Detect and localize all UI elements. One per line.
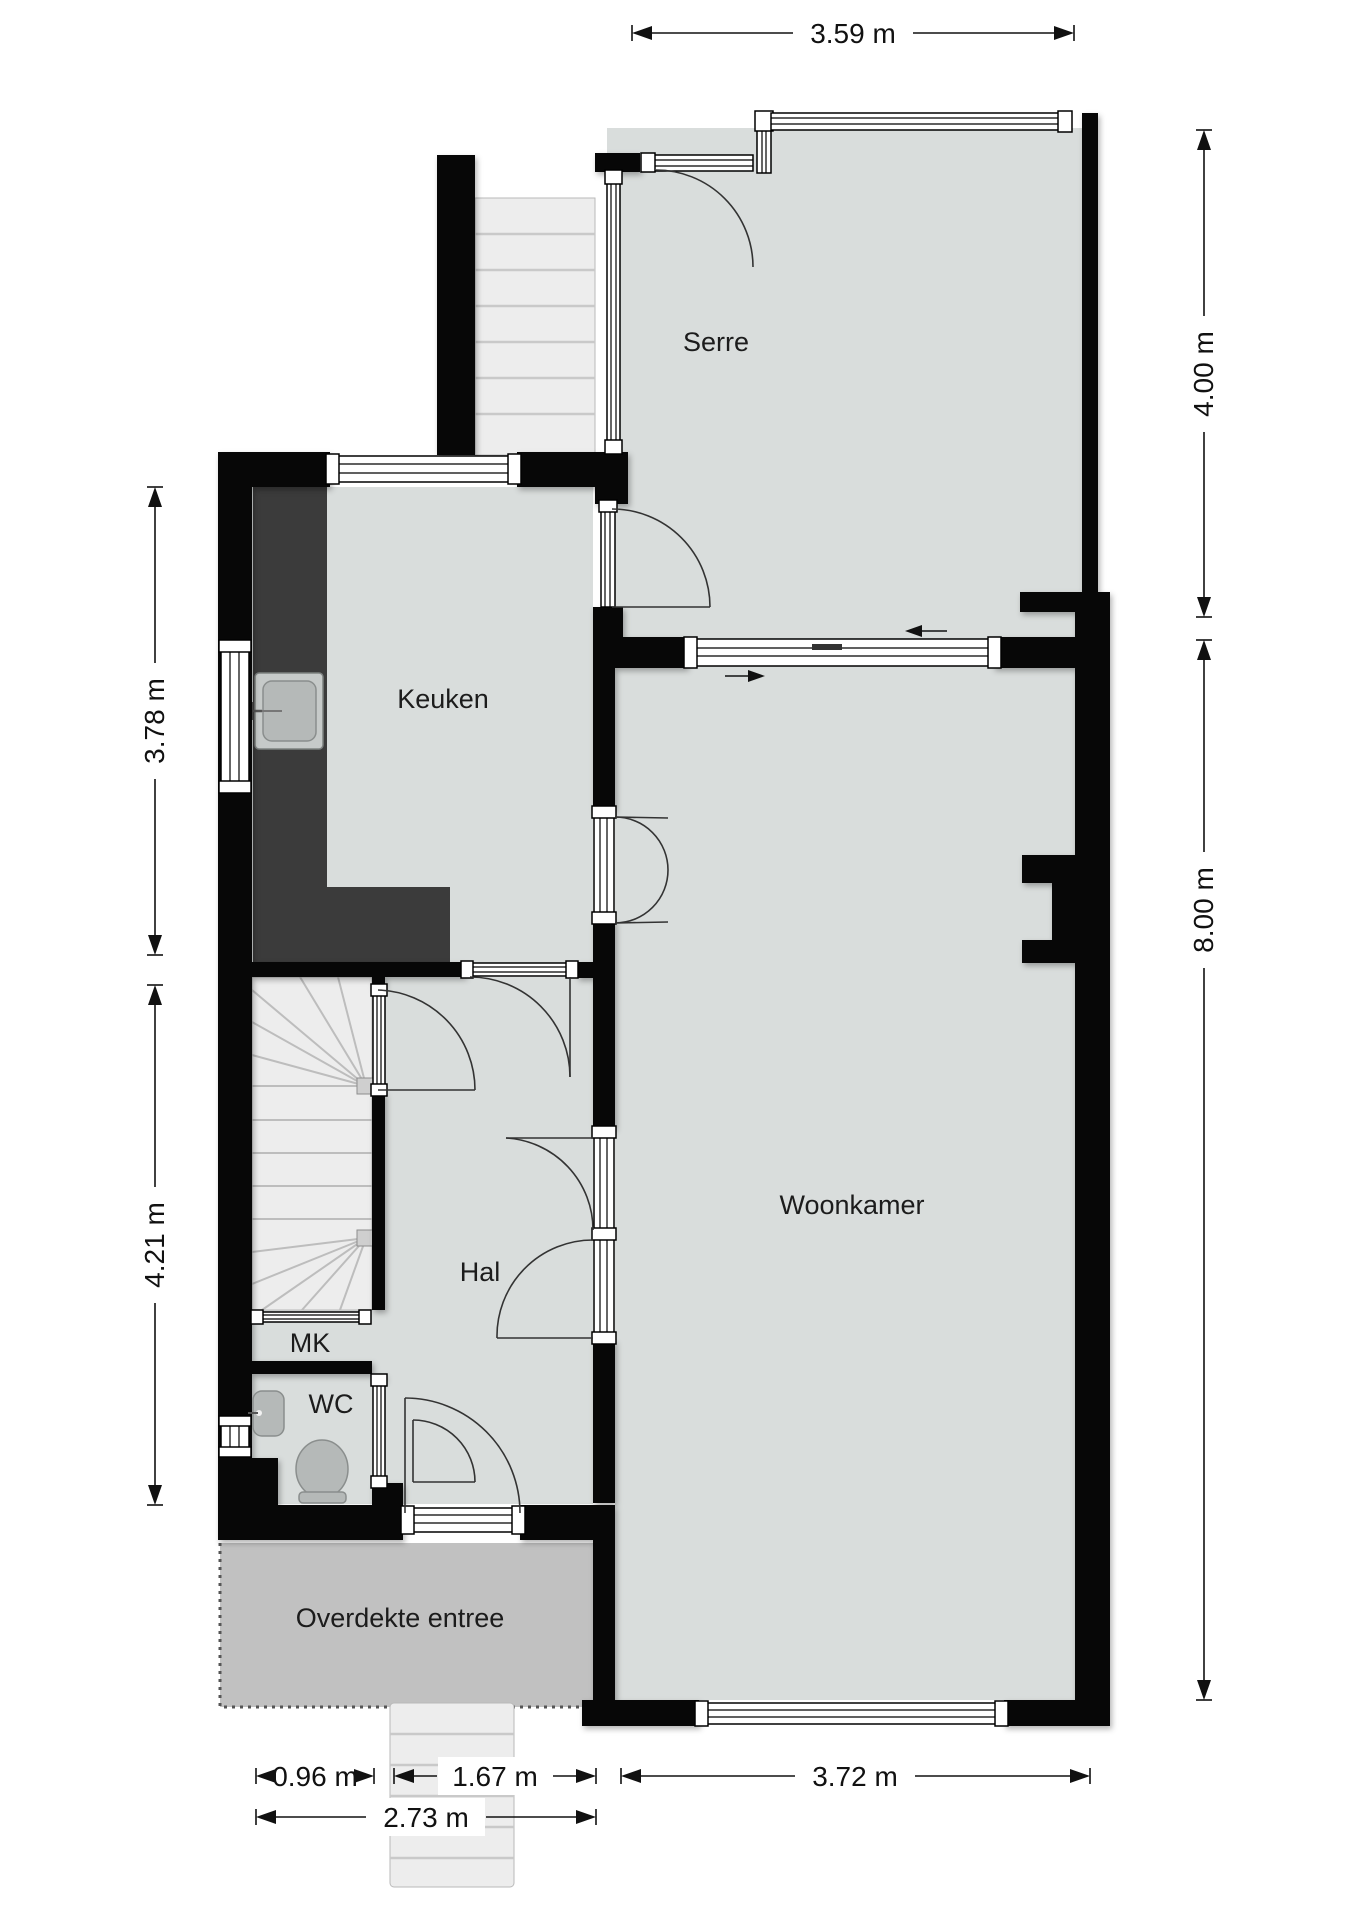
svg-text:4.21 m: 4.21 m	[139, 1202, 170, 1288]
wc-window	[219, 1416, 251, 1457]
svg-text:1.67 m: 1.67 m	[452, 1761, 538, 1792]
floorplan-drawing: Serre Keuken Woonkamer Hal MK WC Overdek…	[0, 0, 1358, 1920]
keuken-top-window	[326, 454, 521, 484]
svg-text:8.00 m: 8.00 m	[1188, 867, 1219, 953]
mk-door-track	[251, 1310, 371, 1324]
woonkamer-floor	[615, 660, 1075, 1700]
svg-text:0.96 m: 0.96 m	[272, 1761, 358, 1792]
keuken-left-window	[219, 640, 251, 793]
serre-top-window	[771, 111, 1072, 132]
room-label-serre: Serre	[683, 327, 749, 357]
kitchen-sink	[243, 673, 323, 749]
dim-bottom-total: 2.73 m	[256, 1798, 596, 1836]
room-label-hal: Hal	[460, 1257, 501, 1287]
serre-top-door-track	[641, 153, 753, 172]
exterior-stairs-top	[475, 198, 595, 455]
svg-text:3.72 m: 3.72 m	[812, 1761, 898, 1792]
serre-left-window	[605, 170, 622, 454]
dim-right-upper: 4.00 m	[1188, 130, 1219, 617]
dim-top: 3.59 m	[632, 18, 1074, 49]
dim-right-lower: 8.00 m	[1188, 640, 1219, 1700]
room-label-mk: MK	[290, 1328, 331, 1358]
sliding-door-handle	[812, 644, 842, 650]
dim-left-lower: 4.21 m	[139, 985, 170, 1505]
svg-text:3.78 m: 3.78 m	[139, 678, 170, 764]
svg-text:2.73 m: 2.73 m	[383, 1802, 469, 1833]
svg-text:4.00 m: 4.00 m	[1188, 331, 1219, 417]
woonkamer-bottom-window	[695, 1701, 1008, 1726]
wc-washbasin	[248, 1391, 284, 1436]
serre-floor	[607, 128, 1082, 640]
room-label-woonkamer: Woonkamer	[779, 1190, 924, 1220]
dim-left-upper: 3.78 m	[139, 487, 170, 955]
wc-toilet	[296, 1440, 348, 1503]
dim-bottom-left: 0.96 m	[256, 1761, 374, 1792]
stair-newel-lower	[357, 1230, 373, 1246]
interior-staircase	[252, 977, 373, 1310]
room-label-wc: WC	[309, 1389, 354, 1419]
room-label-keuken: Keuken	[397, 684, 489, 714]
floorplan-page: Serre Keuken Woonkamer Hal MK WC Overdek…	[0, 0, 1358, 1920]
dim-bottom-right: 3.72 m	[621, 1761, 1090, 1792]
room-label-overdekte-entree: Overdekte entree	[296, 1603, 505, 1633]
svg-text:3.59 m: 3.59 m	[810, 18, 896, 49]
